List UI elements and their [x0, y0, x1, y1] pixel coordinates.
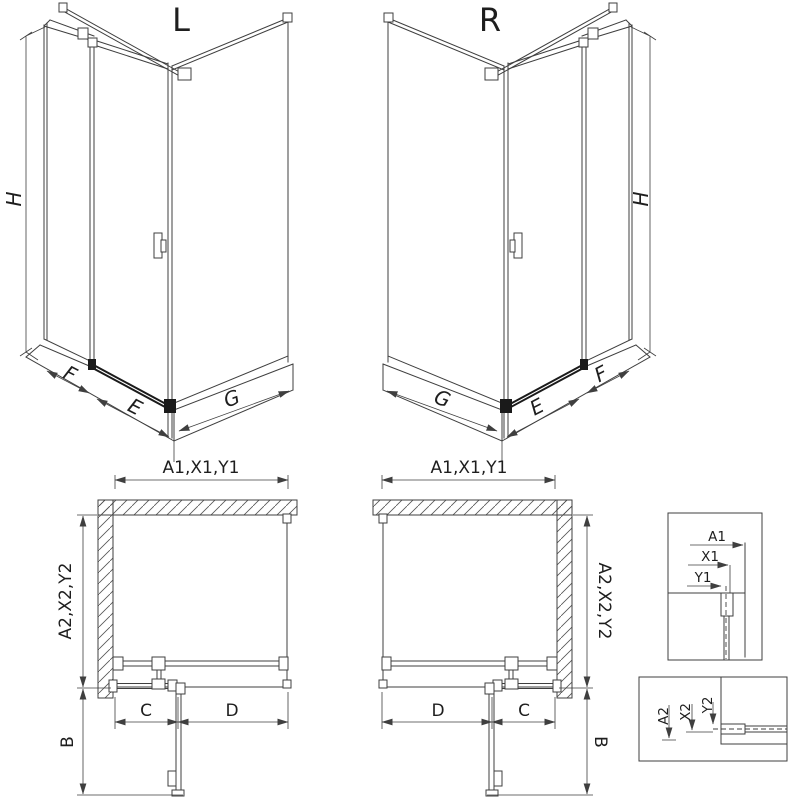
- dim-label-d-left-plan: D: [225, 701, 238, 721]
- dim-label-c-right-plan: C: [518, 701, 530, 721]
- isometric-view-right: R H F E G: [383, 1, 656, 462]
- drawing-page: L H F E G R H F E G A1,X1,Y1 A2,X2,Y2 B …: [0, 0, 800, 800]
- view-right-title: R: [479, 1, 501, 39]
- dim-label-width-left-plan: A1,X1,Y1: [163, 458, 240, 478]
- dim-label-h-left: H: [2, 191, 26, 206]
- plan-view-left: A1,X1,Y1 A2,X2,Y2 B C D: [56, 458, 297, 796]
- dim-label-swing-right-plan: B: [590, 736, 610, 748]
- detail-box-vertical-dims: A2 X2 Y2: [639, 677, 787, 761]
- detail-label-y1: Y1: [694, 570, 712, 586]
- wall-hatch-side-right-plan: [557, 500, 572, 698]
- wall-profile-section: [721, 593, 733, 616]
- detail-label-x2: X2: [678, 703, 694, 721]
- dim-label-depth-left-plan: A2,X2,Y2: [56, 563, 76, 640]
- detail-label-a2: A2: [656, 707, 672, 725]
- dim-label-e-left: E: [124, 393, 146, 420]
- glass-edge-section: [724, 616, 729, 659]
- plan-view-right: A1,X1,Y1 A2,X2,Y2 B D C: [373, 458, 614, 796]
- dim-label-f-left: F: [60, 360, 82, 387]
- detail-label-x1: X1: [701, 549, 719, 565]
- wall-hatch-top-left-plan: [98, 500, 297, 515]
- dim-label-d-right-plan: D: [431, 701, 444, 721]
- iso-geometry-right-mirrored: [383, 3, 656, 462]
- detail-box-horizontal-dims: A1 X1 Y1: [668, 513, 762, 660]
- dim-label-depth-right-plan: A2,X2,Y2: [594, 563, 614, 640]
- detail-label-a1: A1: [708, 529, 726, 545]
- view-left-title: L: [172, 1, 190, 39]
- dim-label-swing-left-plan: B: [58, 736, 78, 748]
- shower-enclosure-technical-drawing: L H F E G R H F E G A1,X1,Y1 A2,X2,Y2 B …: [0, 0, 800, 800]
- dim-label-c-left-plan: C: [140, 701, 152, 721]
- dim-label-g-right: G: [431, 384, 454, 412]
- dim-label-g-left: G: [220, 384, 243, 412]
- isometric-view-left: L H F E G: [2, 1, 293, 462]
- dim-label-f-right: F: [590, 360, 612, 387]
- dim-label-width-right-plan: A1,X1,Y1: [431, 458, 508, 478]
- wall-hatch-side-left-plan: [98, 500, 113, 698]
- dim-label-h-right: H: [629, 191, 653, 206]
- detail-label-y2: Y2: [700, 697, 716, 715]
- iso-geometry-left: [20, 3, 293, 462]
- wall-hatch-top-right-plan: [373, 500, 572, 515]
